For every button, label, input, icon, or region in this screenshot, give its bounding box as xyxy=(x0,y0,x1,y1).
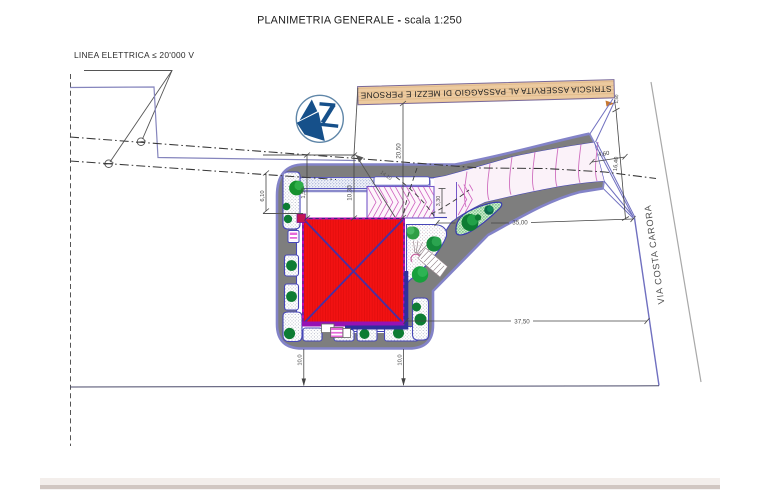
svg-text:35,00: 35,00 xyxy=(512,220,528,227)
svg-text:PLANIMETRIA GENERALE - scala 1: PLANIMETRIA GENERALE - scala 1:250 xyxy=(257,15,462,27)
svg-text:6,10: 6,10 xyxy=(260,190,266,201)
svg-text:LINEA ELETTRICA ≤ 20'000 V: LINEA ELETTRICA ≤ 20'000 V xyxy=(74,50,194,60)
svg-text:10,0: 10,0 xyxy=(397,354,403,365)
svg-text:1,50: 1,50 xyxy=(614,94,619,104)
svg-text:20,50: 20,50 xyxy=(396,143,403,159)
svg-text:3,30: 3,30 xyxy=(436,196,442,207)
svg-text:37,50: 37,50 xyxy=(514,318,530,325)
svg-text:10,30: 10,30 xyxy=(347,185,354,201)
svg-text:1,50: 1,50 xyxy=(301,187,307,198)
svg-text:10,0: 10,0 xyxy=(298,354,304,365)
